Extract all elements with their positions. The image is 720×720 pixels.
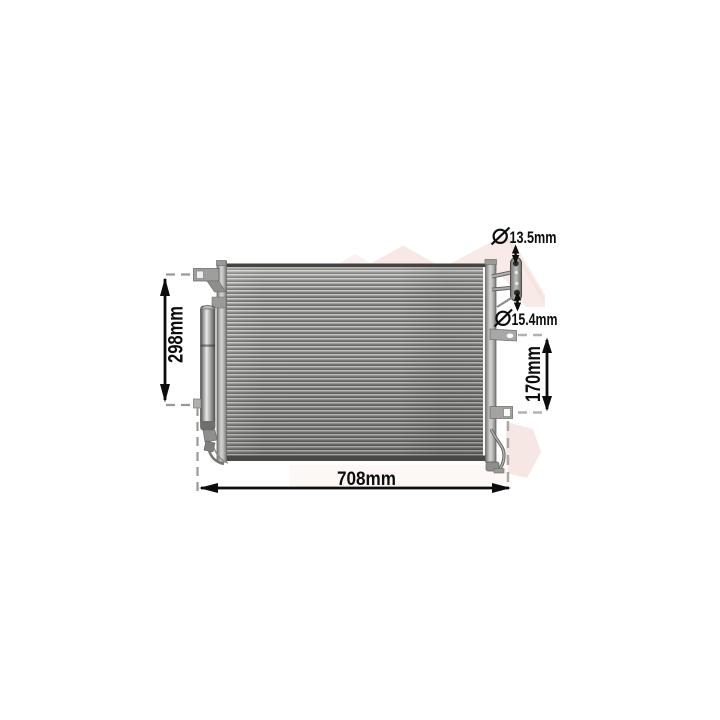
svg-text:170mm: 170mm — [522, 346, 545, 402]
svg-text:298mm: 298mm — [165, 306, 188, 363]
svg-text:708mm: 708mm — [337, 468, 396, 490]
svg-text:15.4mm: 15.4mm — [512, 311, 558, 329]
svg-text:13.5mm: 13.5mm — [510, 229, 557, 247]
